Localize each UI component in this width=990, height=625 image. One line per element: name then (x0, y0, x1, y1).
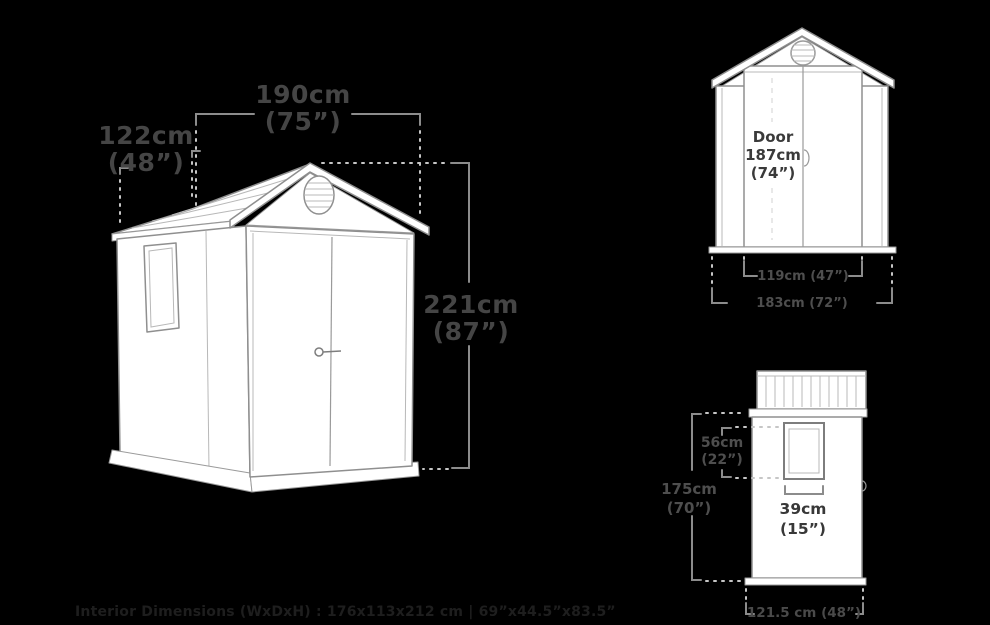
main-shed-drawing (109, 163, 429, 492)
main-width-label: 190cm (75”) (223, 81, 383, 135)
side-window-width-label: 39cm (15”) (753, 499, 853, 539)
front-door-height-cm: 187cm (713, 146, 833, 164)
side-window-height-cm: 56cm (672, 435, 772, 452)
side-view-drawing (745, 371, 867, 585)
front-door-width-label: 119cm (47”) (723, 269, 883, 284)
side-window-height-label: 56cm (22”) (672, 435, 772, 469)
side-view-window (784, 423, 824, 479)
main-height-in: (87”) (391, 318, 551, 345)
gable-vent (304, 176, 334, 214)
front-door-height-in: (74”) (713, 164, 833, 182)
main-side-wall (117, 226, 250, 477)
shed-dimensions-diagram: 190cm (75”) 122cm (48”) 221cm (87”) Door… (0, 0, 990, 625)
main-width-in: (75”) (223, 108, 383, 135)
front-base (709, 247, 896, 253)
main-depth-cm: 122cm (66, 122, 226, 149)
side-height-cm: 175cm (639, 480, 739, 499)
main-width-cm: 190cm (223, 81, 383, 108)
interior-dimensions-caption: Interior Dimensions (WxDxH) : 176x113x21… (75, 604, 635, 620)
side-depth-label: 121.5 cm (48”) (724, 606, 884, 621)
main-height-label: 221cm (87”) (391, 291, 551, 345)
main-depth-label: 122cm (48”) (66, 122, 226, 176)
side-window-width-in: (15”) (753, 519, 853, 539)
side-base (745, 578, 866, 585)
front-door-label: Door 187cm (74”) (713, 128, 833, 182)
side-height-label: 175cm (70”) (639, 480, 739, 518)
side-eave (749, 409, 867, 417)
side-window-width-cm: 39cm (753, 499, 853, 519)
front-door-word: Door (713, 128, 833, 146)
front-overall-width-label: 183cm (72”) (722, 296, 882, 311)
main-height-cm: 221cm (391, 291, 551, 318)
side-window-height-in: (22”) (672, 452, 772, 469)
side-height-in: (70”) (639, 499, 739, 518)
main-depth-in: (48”) (66, 149, 226, 176)
front-gable-vent (791, 41, 815, 65)
